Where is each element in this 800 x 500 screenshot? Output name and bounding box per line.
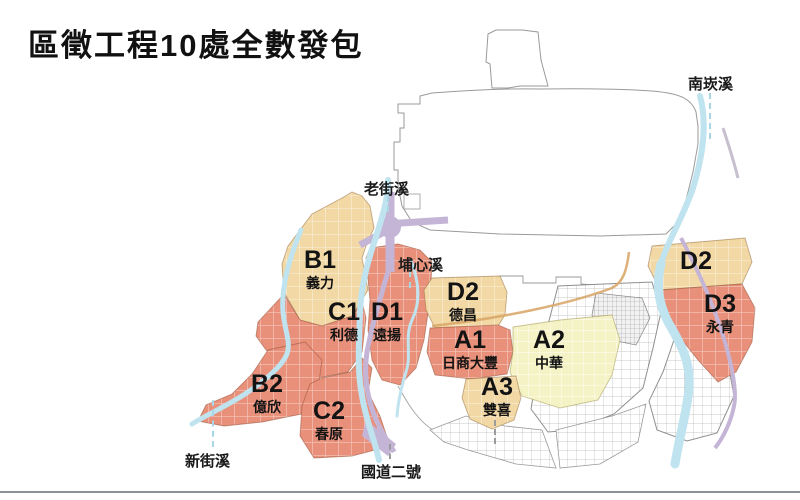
zone-code: C1 [328,300,360,326]
label-puxin-river: 埔心溪 [398,254,443,275]
leader-highway2 [389,444,391,459]
label-nankan-river: 南崁溪 [688,73,733,94]
zone-label-d2-east: D2 [680,249,712,277]
zone-name: 永青 [704,320,736,334]
zone-code: A1 [442,328,498,354]
zone-name: 億欣 [251,400,283,414]
zone-label-a3: A3 雙喜 [481,375,513,417]
zone-code: D2 [447,280,479,306]
footer-divider [0,491,800,493]
zone-code: D3 [704,292,736,318]
airport-north-parcel-outline [486,30,548,88]
label-xinjie-river: 新街溪 [185,450,230,471]
zone-name: 德昌 [447,308,479,322]
zone-code: B2 [251,372,283,398]
leader-a3 [494,420,496,444]
zone-code: D1 [371,300,403,326]
zone-name: 春原 [313,427,345,441]
label-national-highway-2: 國道二號 [361,461,421,482]
zone-code: A3 [481,375,513,401]
label-laojie-river: 老街溪 [364,178,409,199]
zone-label-c1: C1 利德 [328,300,360,342]
boundary-line [398,386,433,430]
zone-label-a1: A1 日商大豐 [442,328,498,370]
zone-name: 義力 [304,276,336,290]
zone-name: 遠揚 [371,328,403,342]
zone-label-b1: B1 義力 [304,248,336,290]
zone-code: D2 [680,249,712,275]
zone-label-a2: A2 中華 [533,328,565,370]
page-title: 區徵工程10處全數發包 [28,20,363,65]
zone-name: 日商大豐 [442,356,498,370]
zone-label-b2: B2 億欣 [251,372,283,414]
zone-label-c2: C2 春原 [313,399,345,441]
leader-xinjie [212,400,214,447]
zone-code: B1 [304,248,336,274]
zone-code: A2 [533,328,565,354]
zone-name: 中華 [533,356,565,370]
leader-nankan [709,93,711,139]
zone-label-d2-west: D2 德昌 [447,280,479,322]
slide: 區徵工程10處全數發包 南崁溪 老街溪 埔心溪 新街溪 國道二號 B1 義力 C… [0,0,800,500]
zone-code: C2 [313,399,345,425]
zone-label-d1: D1 遠揚 [371,300,403,342]
road-northeast [723,128,738,178]
zone-name: 利德 [328,328,360,342]
zone-name: 雙喜 [481,403,513,417]
zone-label-d3: D3 永青 [704,292,736,334]
airport-outline [394,89,698,236]
